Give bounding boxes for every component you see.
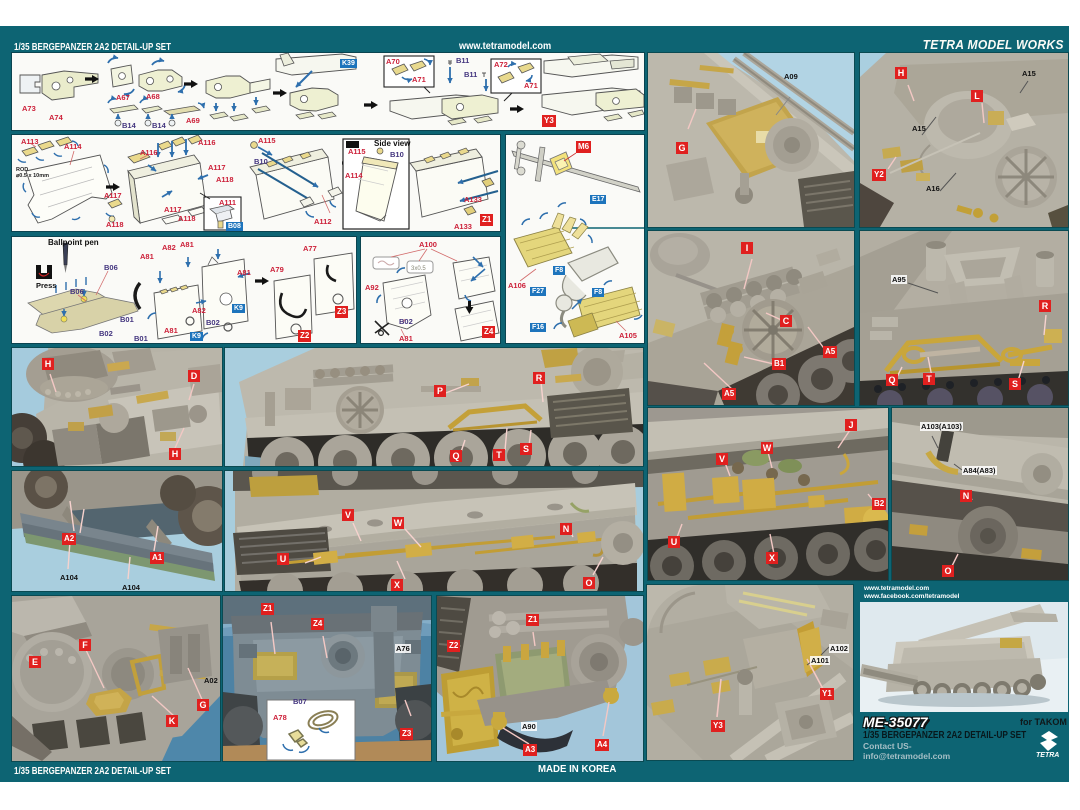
svg-text:3x0.5: 3x0.5	[411, 266, 426, 272]
svg-text:TETRA: TETRA	[1036, 752, 1059, 759]
